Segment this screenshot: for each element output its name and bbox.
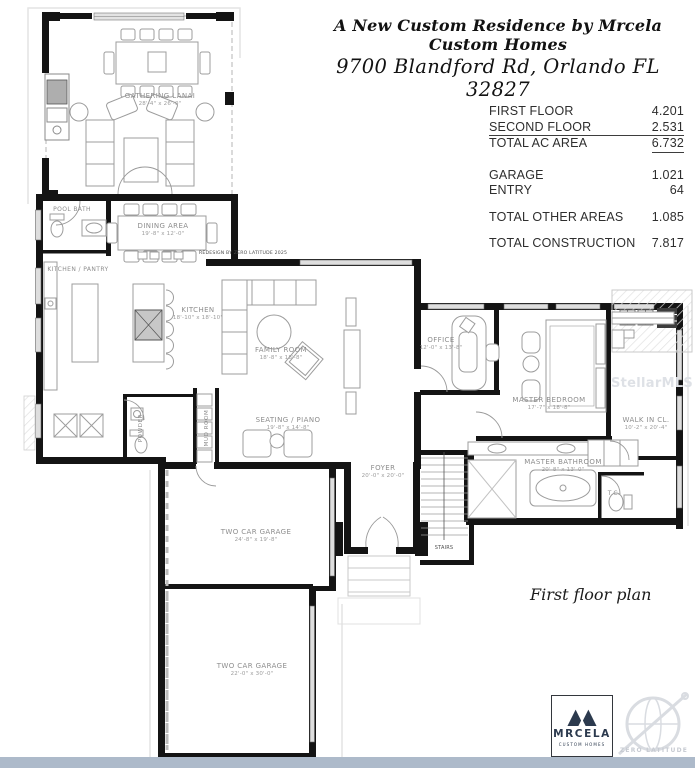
page-address: 9700 Blandford Rd, Orlando FL 32827 [303,55,693,101]
room-label-seating-piano: SEATING / PIANO19'-8" x 14'-8" [256,416,321,432]
table-row: TOTAL AC AREA6.732 [489,135,684,153]
room-label-tc: T.C. [608,490,621,498]
kitchen-icons [44,262,174,390]
entry-steps-icon [338,556,420,624]
stairs-icon [421,452,468,540]
stellar-mls-watermark: StellarMLS [611,376,693,391]
room-label-mud-room: MUD ROOM [204,410,210,447]
room-label-master-bedroom: MASTER BEDROOM17'-7" x 18'-8" [512,396,585,412]
table-row: ENTRY64 [489,183,684,199]
room-label-stairs: STAIRS [435,544,454,552]
table-row: TOTAL CONSTRUCTION7.817 [489,236,684,252]
logo-tagline: CUSTOM HOMES [559,742,605,747]
laundry-machines-icon [54,414,103,437]
seating-chairs-icon [243,430,312,457]
floor-plan-page: A New Custom Residence by Mrcela Custom … [0,0,695,768]
compass-watermark-text: ZERO LATITUDE [616,747,692,754]
room-label-garage-1: TWO CAR GARAGE24'-8" x 19'-8" [221,528,292,544]
logo-name: MRCELA [553,728,611,740]
room-label-garage-2: TWO CAR GARAGE22'-0" x 30'-0" [217,662,288,678]
plan-caption: First floor plan [530,585,651,604]
outdoor-kitchen-icon [45,74,69,140]
table-row: TOTAL OTHER AREAS1.085 [489,210,684,226]
area-table: FIRST FLOOR4.201 SECOND FLOOR2.531 TOTAL… [489,104,684,252]
pool-bath-fixtures-icon [50,214,106,237]
room-label-powder: POWDER [138,414,144,442]
page-title: A New Custom Residence by Mrcela Custom … [303,16,693,54]
title-block: A New Custom Residence by Mrcela Custom … [303,16,693,101]
room-label-master-bathroom: MASTER BATHROOM20'-8" x 13'-0" [524,458,602,474]
table-row: GARAGE1.021 [489,168,684,184]
room-label-kitchen-pantry: KITCHEN / PANTRY [47,266,108,274]
bottom-bar [0,757,695,768]
room-label-kitchen: KITCHEN18'-10" x 18'-10" [173,306,223,322]
office-desk-icon [452,316,499,390]
room-label-office: OFFICE12'-0" x 13'-8" [420,336,463,352]
furniture-layer [44,204,674,750]
room-label-pool-bath: POOL BATH [53,206,91,214]
mrcela-logo-mark-icon [564,706,600,726]
room-label-foyer: FOYER20'-0" x 20'-0" [362,464,405,480]
room-label-gathering-lanai: GATHERING LANAI28'-4" x 26'-0" [125,92,195,108]
redesign-note: REDESIGN BY ZERO LATITUDE 2025 [199,251,287,256]
table-row: FIRST FLOOR4.201 [489,104,684,120]
mrcela-logo: MRCELA CUSTOM HOMES [551,695,613,757]
room-label-family-room: FAMILY ROOM18'-8" x 18'-8" [255,346,307,362]
table-row: SECOND FLOOR2.531 [489,120,684,136]
room-label-walk-in-closet: WALK IN CL.10'-2" x 20'-4" [623,416,670,432]
room-label-dining-area: DINING AREA19'-8" x 12'-0" [138,222,189,238]
